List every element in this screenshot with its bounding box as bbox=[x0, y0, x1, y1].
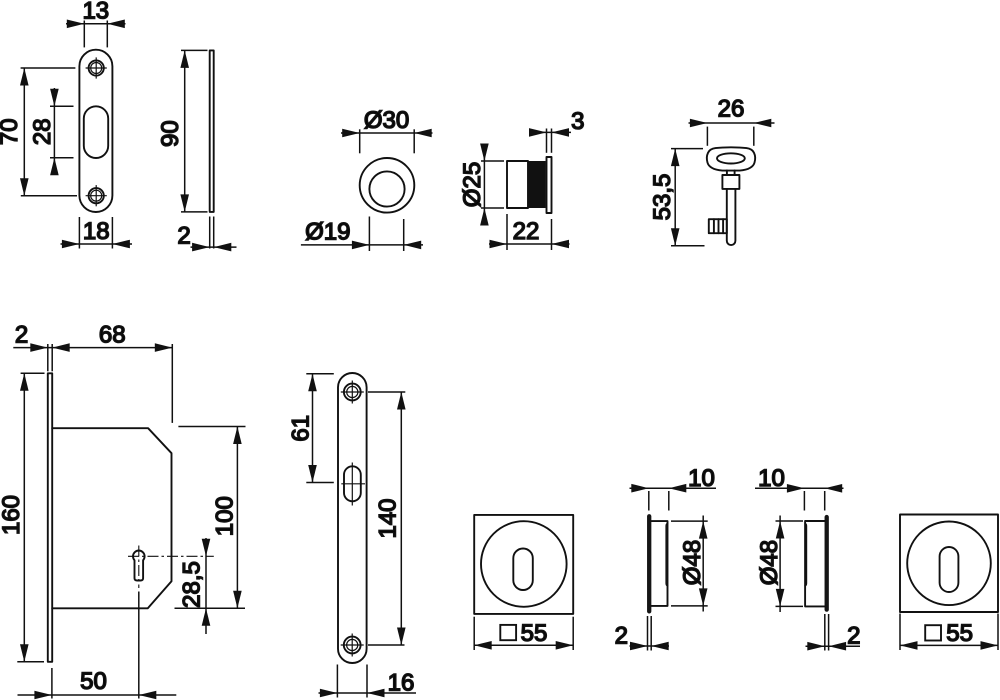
svg-text:26: 26 bbox=[718, 96, 745, 123]
svg-text:13: 13 bbox=[82, 0, 109, 25]
svg-text:2: 2 bbox=[15, 322, 28, 349]
svg-text:2: 2 bbox=[177, 223, 190, 250]
svg-text:50: 50 bbox=[80, 668, 107, 695]
svg-text:140: 140 bbox=[375, 498, 402, 538]
svg-text:61: 61 bbox=[287, 415, 314, 442]
svg-text:68: 68 bbox=[99, 321, 126, 348]
svg-text:28,5: 28,5 bbox=[179, 561, 206, 608]
svg-text:55: 55 bbox=[946, 620, 973, 647]
svg-text:2: 2 bbox=[847, 623, 860, 650]
svg-text:90: 90 bbox=[157, 120, 184, 147]
svg-text:53,5: 53,5 bbox=[649, 174, 676, 221]
svg-text:22: 22 bbox=[513, 218, 540, 245]
svg-text:Ø48: Ø48 bbox=[679, 540, 706, 585]
svg-text:2: 2 bbox=[615, 623, 628, 650]
svg-text:10: 10 bbox=[688, 465, 715, 492]
svg-text:100: 100 bbox=[212, 496, 239, 536]
svg-text:55: 55 bbox=[521, 620, 548, 647]
svg-text:28: 28 bbox=[29, 118, 56, 145]
svg-text:16: 16 bbox=[388, 670, 415, 697]
svg-text:160: 160 bbox=[0, 495, 25, 535]
svg-text:Ø19: Ø19 bbox=[305, 219, 350, 246]
svg-text:Ø48: Ø48 bbox=[756, 540, 783, 585]
svg-text:3: 3 bbox=[571, 108, 584, 135]
svg-text:10: 10 bbox=[758, 465, 785, 492]
svg-text:70: 70 bbox=[0, 118, 23, 145]
svg-text:Ø25: Ø25 bbox=[459, 162, 486, 207]
svg-text:Ø30: Ø30 bbox=[364, 107, 409, 134]
svg-text:18: 18 bbox=[83, 218, 110, 245]
